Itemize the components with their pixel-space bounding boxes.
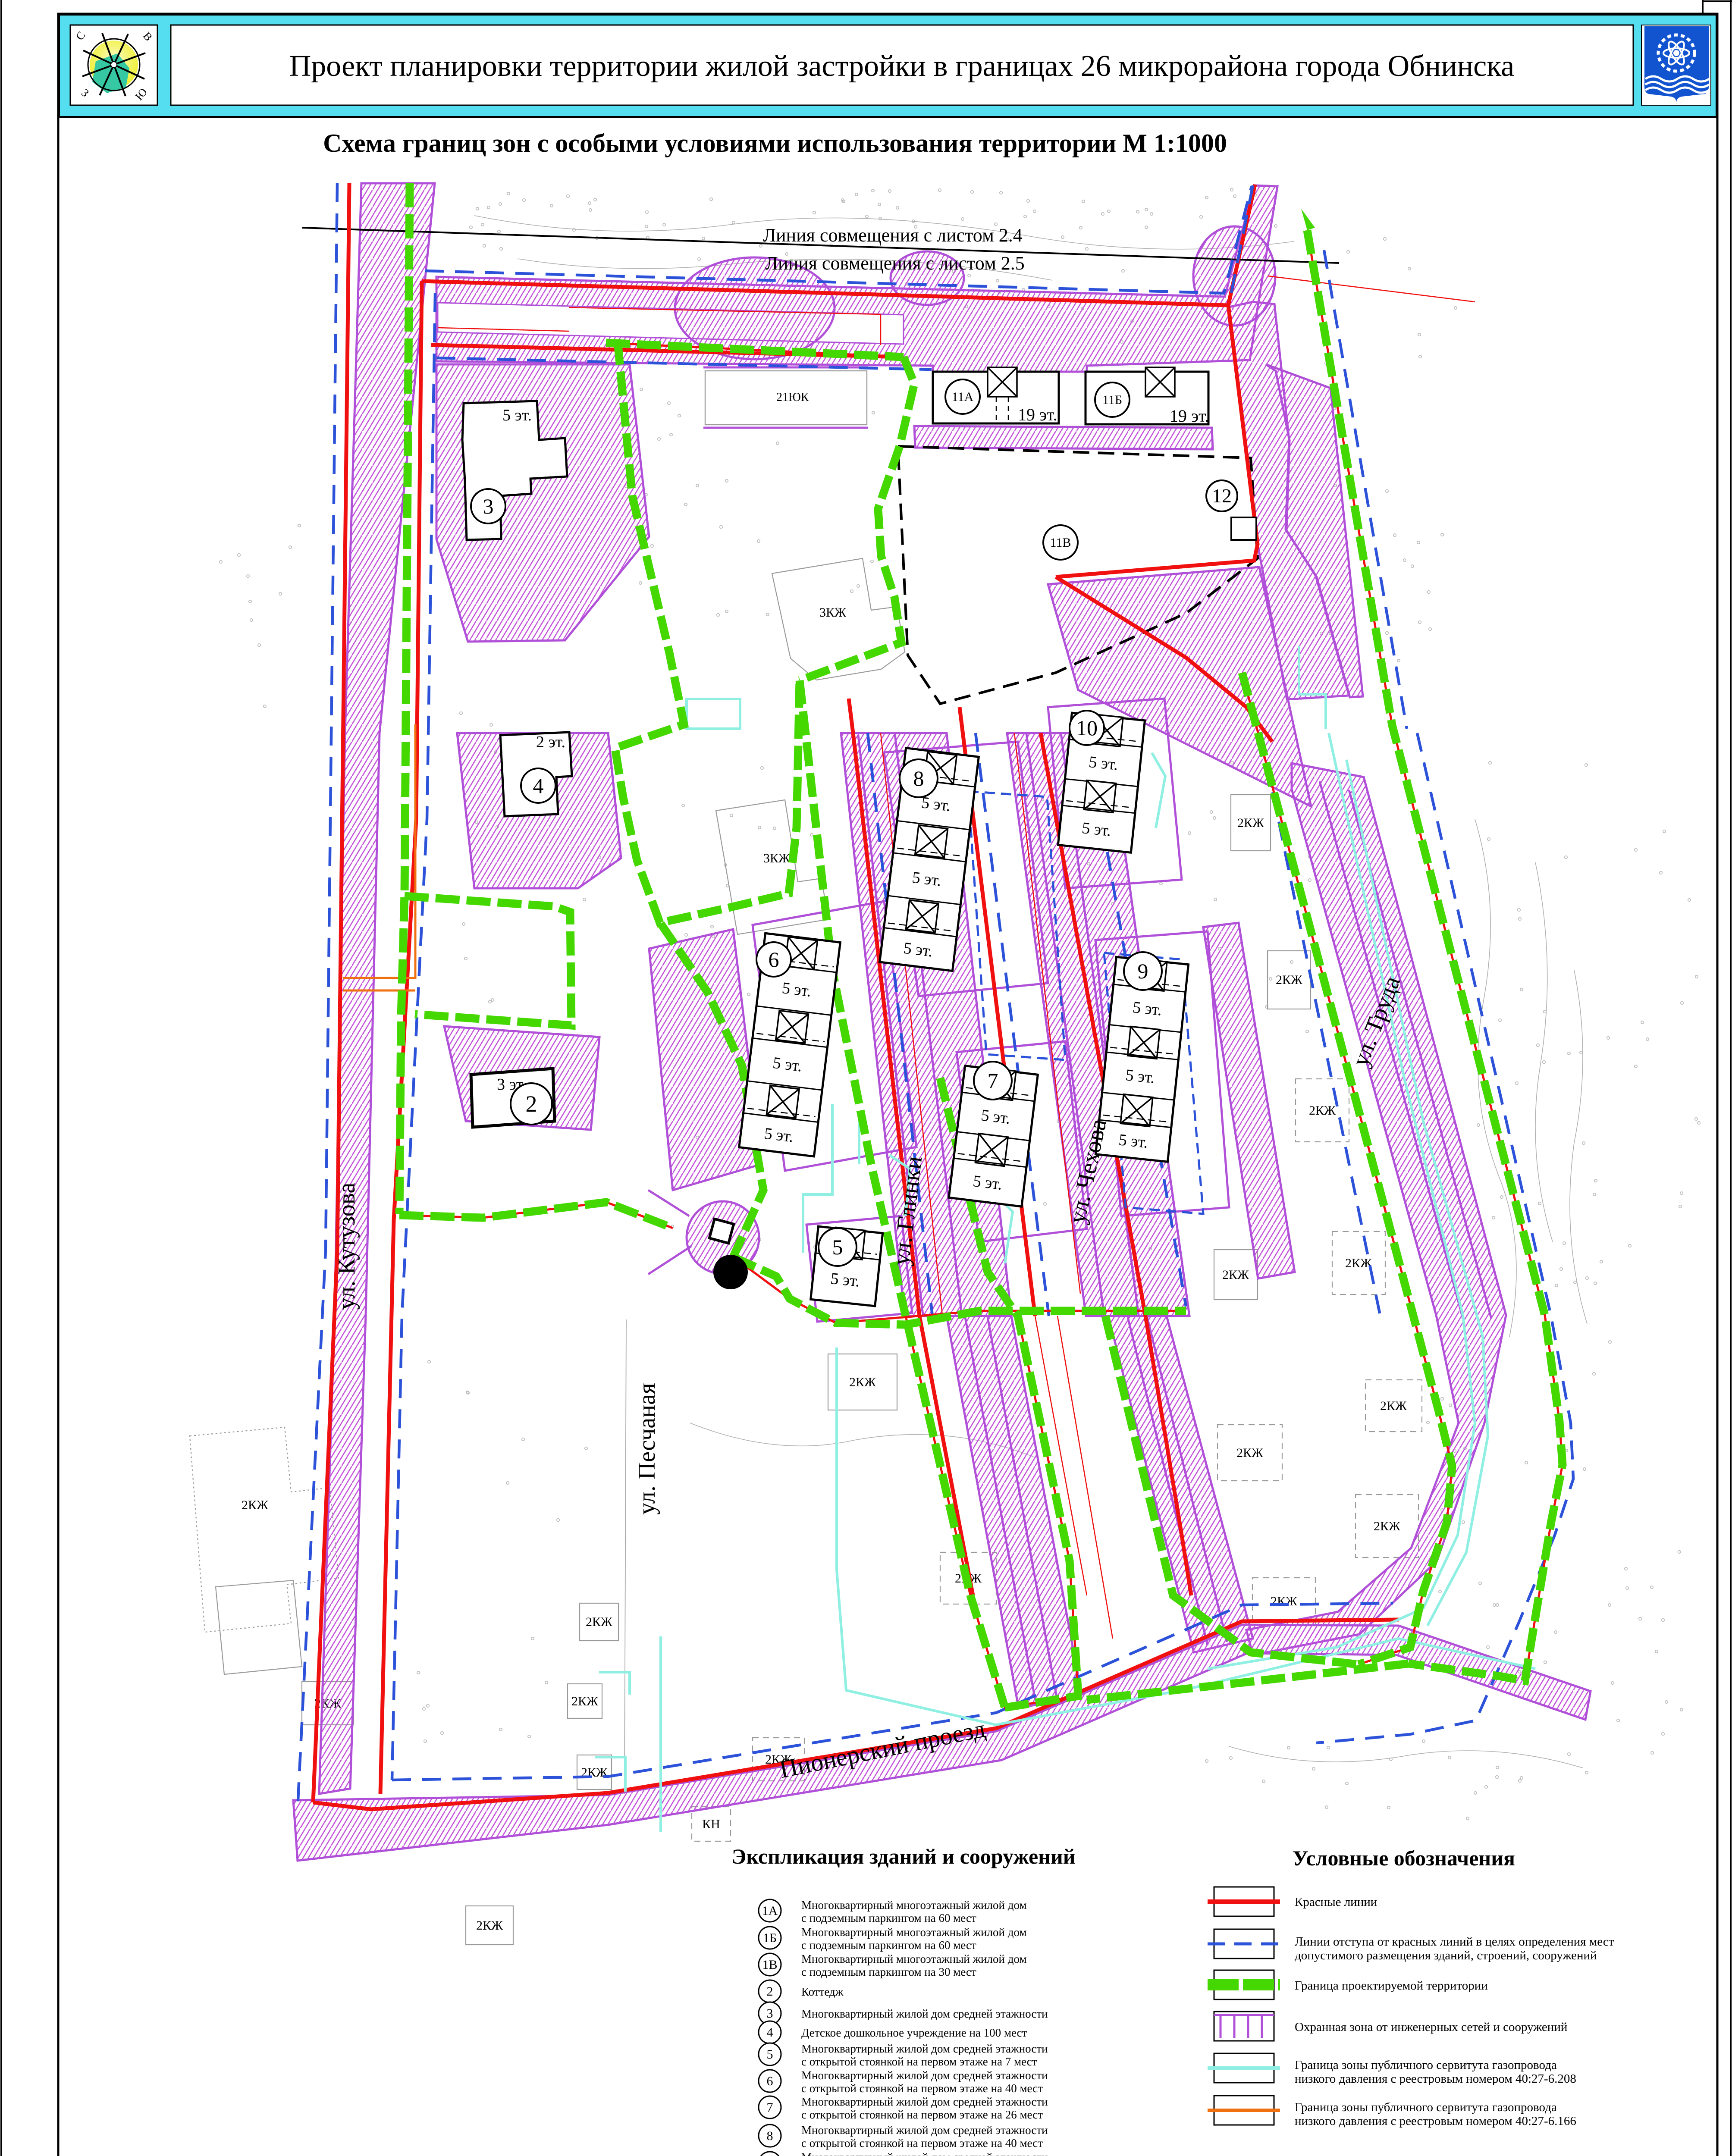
svg-text:5 эт.: 5 эт. [772,1054,803,1075]
svg-text:21ЮК: 21ЮК [776,391,809,404]
svg-text:ул. Кутузова: ул. Кутузова [333,1183,360,1310]
svg-text:Коттедж: Коттедж [801,1985,844,1998]
svg-text:2КЖ: 2КЖ [1276,973,1302,987]
svg-text:с подземным паркингом на 60 ме: с подземным паркингом на 60 мест [801,1939,976,1952]
svg-text:5 эт.: 5 эт. [502,406,532,424]
svg-text:2: 2 [526,1091,537,1117]
svg-text:3КЖ: 3КЖ [763,851,790,865]
svg-text:4: 4 [533,774,544,798]
svg-text:3КЖ: 3КЖ [819,605,846,620]
svg-text:5 эт.: 5 эт. [972,1172,1004,1194]
svg-text:Красные линии: Красные линии [1295,1895,1377,1909]
svg-text:Многоквартирный многоэтажный ж: Многоквартирный многоэтажный жилой дом [801,1952,1027,1965]
svg-text:2КЖ: 2КЖ [586,1615,612,1629]
svg-text:с открытой стоянкой на первом: с открытой стоянкой на первом этаже на 4… [801,2137,1043,2150]
svg-text:2КЖ: 2КЖ [476,1918,503,1933]
svg-text:с подземным паркингом на 60 ме: с подземным паркингом на 60 мест [801,1912,976,1924]
svg-text:5 эт.: 5 эт. [781,979,813,1000]
svg-text:5 эт.: 5 эт. [1088,753,1119,774]
svg-text:ул. Песчаная: ул. Песчаная [634,1383,660,1515]
svg-text:7: 7 [767,2100,773,2115]
svg-text:низкого давления с реестровым: низкого давления с реестровым номером 40… [1295,2114,1576,2128]
svg-text:допустимого размещения зданий,: допустимого размещения зданий, строений,… [1295,1949,1597,1962]
svg-text:с подземным паркингом на 30 ме: с подземным паркингом на 30 мест [801,1965,976,1978]
svg-text:2КЖ: 2КЖ [1374,1519,1400,1533]
svg-text:2 эт.: 2 эт. [536,733,565,751]
svg-text:5 эт.: 5 эт. [1118,1131,1149,1152]
svg-text:2: 2 [767,1984,773,1999]
svg-text:2КЖ: 2КЖ [571,1694,598,1708]
svg-text:Многоквартирный жилой дом сре: Многоквартирный жилой дом средней этажно… [801,2042,1048,2055]
svg-text:Схема границ зон с особыми усл: Схема границ зон с особыми условиями исп… [323,129,1227,157]
svg-text:с открытой стоянкой на первом: с открытой стоянкой на первом этаже на 2… [801,2108,1043,2121]
svg-text:11В: 11В [1050,536,1071,550]
svg-text:Детское дошкольное учреждение: Детское дошкольное учреждение на 100 мес… [801,2026,1027,2039]
svg-text:с открытой стоянкой на первом: с открытой стоянкой на первом этаже на 7… [801,2055,1037,2068]
svg-text:2КЖ: 2КЖ [1222,1268,1249,1282]
svg-text:Граница зоны публичного сервит: Граница зоны публичного сервитута газопр… [1295,2058,1557,2072]
svg-text:11Б: 11Б [1102,393,1122,407]
svg-text:1А: 1А [762,1904,778,1918]
svg-text:Многоквартирный жилой дом сре: Многоквартирный жилой дом средней этажно… [801,2124,1048,2137]
svg-text:9: 9 [1138,959,1148,983]
svg-text:Охранная зона от инженерных се: Охранная зона от инженерных сетей и соор… [1295,2020,1567,2034]
svg-text:2КЖ: 2КЖ [1237,816,1264,830]
svg-text:с открытой стоянкой на первом: с открытой стоянкой на первом этаже на 4… [801,2082,1043,2095]
svg-text:3: 3 [767,2006,773,2021]
svg-text:КН: КН [702,1817,720,1831]
svg-text:низкого давления с реестровым: низкого давления с реестровым номером 40… [1295,2072,1576,2086]
svg-text:7: 7 [988,1069,998,1093]
svg-text:2КЖ: 2КЖ [1271,1594,1297,1608]
svg-text:19 эт.: 19 эт. [1170,406,1209,426]
svg-text:Экспликация зданий и сооружени: Экспликация зданий и сооружений [731,1844,1075,1868]
svg-text:2КЖ: 2КЖ [1380,1399,1407,1413]
svg-text:5 эт.: 5 эт. [830,1269,861,1291]
svg-text:6: 6 [769,947,779,971]
svg-text:12: 12 [1212,485,1232,507]
svg-text:6: 6 [767,2074,773,2088]
svg-text:8: 8 [767,2129,773,2143]
svg-text:2КЖ: 2КЖ [242,1498,268,1512]
svg-text:19 эт.: 19 эт. [1018,405,1057,424]
svg-text:Проект планировки территории ж: Проект планировки территории жилой застр… [289,50,1515,83]
svg-text:Линия совмещения с листом 2.4: Линия совмещения с листом 2.4 [763,225,1023,246]
svg-text:11А: 11А [952,390,974,404]
svg-text:Многоквартирный многоэтажный ж: Многоквартирный многоэтажный жилой дом [801,1926,1027,1939]
svg-text:2КЖ: 2КЖ [849,1375,876,1389]
svg-text:5 эт.: 5 эт. [1132,998,1163,1019]
svg-text:Линии отступа от красных линий: Линии отступа от красных линий в целях о… [1295,1935,1614,1949]
svg-text:2КЖ: 2КЖ [1345,1256,1372,1270]
svg-text:5 эт.: 5 эт. [911,868,943,890]
svg-text:Многоквартирный жилой дом сре: Многоквартирный жилой дом средней этажно… [801,2095,1048,2108]
svg-text:Граница зоны публичного сервит: Граница зоны публичного сервитута газопр… [1295,2100,1557,2114]
svg-text:5 эт.: 5 эт. [763,1125,794,1146]
svg-text:5: 5 [767,2047,773,2062]
svg-text:2КЖ: 2КЖ [1236,1446,1263,1460]
svg-text:5 эт.: 5 эт. [980,1106,1011,1128]
svg-text:Многоквартирный жилой дом сре: Многоквартирный жилой дом средней этажно… [801,2151,1048,2156]
svg-text:5 эт.: 5 эт. [1125,1066,1156,1087]
svg-text:3: 3 [483,494,494,518]
svg-text:1Б: 1Б [763,1931,777,1945]
svg-text:5 эт.: 5 эт. [902,939,934,961]
svg-text:Многоквартирный жилой дом сре: Многоквартирный жилой дом средней этажно… [801,2069,1048,2082]
svg-text:Граница проектируемой территор: Граница проектируемой территории [1295,1979,1488,1993]
svg-text:5: 5 [832,1235,843,1259]
svg-text:Многоквартирный жилой дом сре: Многоквартирный жилой дом средней этажно… [801,2007,1048,2020]
svg-text:8: 8 [913,766,924,790]
svg-text:4: 4 [767,2025,773,2040]
svg-text:16: 16 [721,1261,740,1283]
svg-text:10: 10 [1076,716,1098,740]
svg-text:Условные обозначения: Условные обозначения [1293,1846,1515,1870]
svg-text:5 эт.: 5 эт. [1081,819,1112,840]
svg-text:1В: 1В [762,1958,777,1972]
svg-text:Многоквартирный многоэтажный ж: Многоквартирный многоэтажный жилой дом [801,1899,1027,1912]
svg-text:Линия совмещения с листом 2.5: Линия совмещения с листом 2.5 [765,253,1025,274]
svg-text:2КЖ: 2КЖ [1309,1103,1336,1118]
